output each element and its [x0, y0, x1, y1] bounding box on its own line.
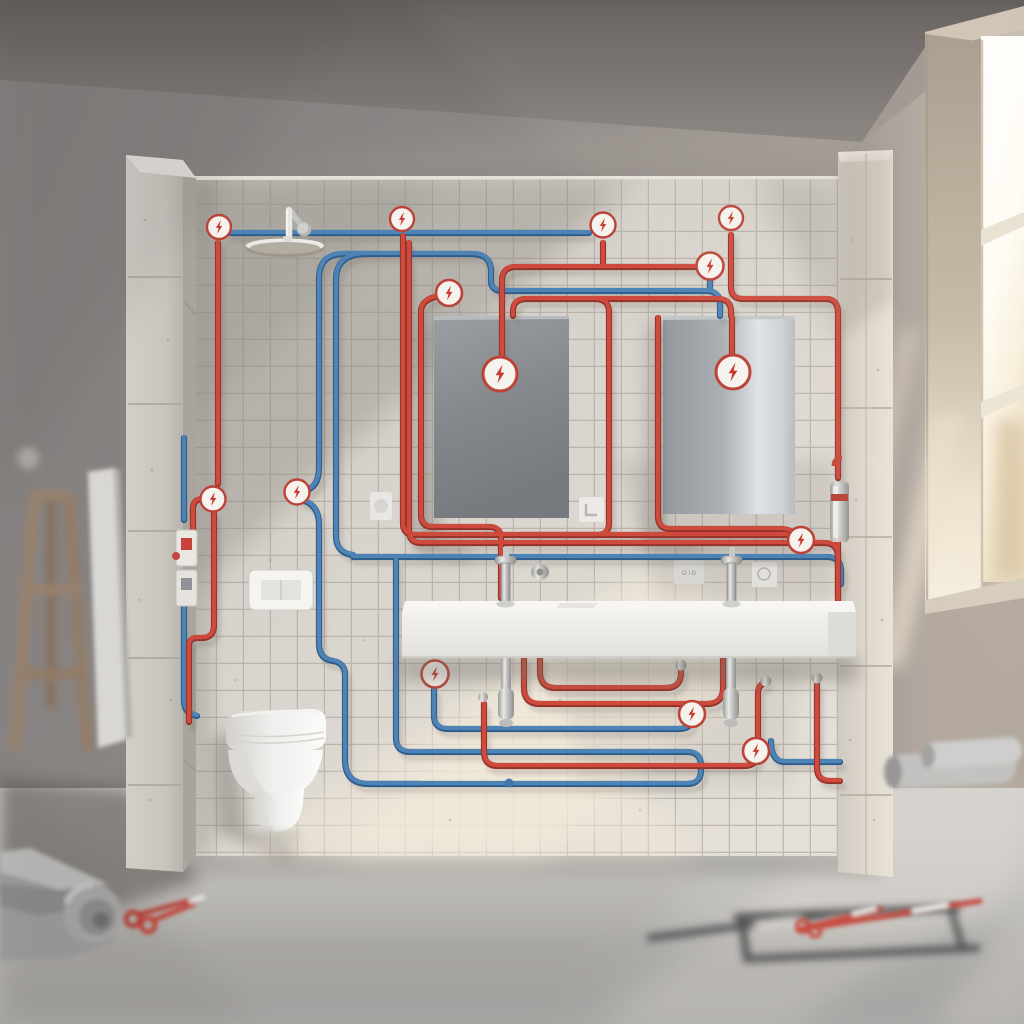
svg-text:O I D: O I D	[682, 571, 697, 577]
